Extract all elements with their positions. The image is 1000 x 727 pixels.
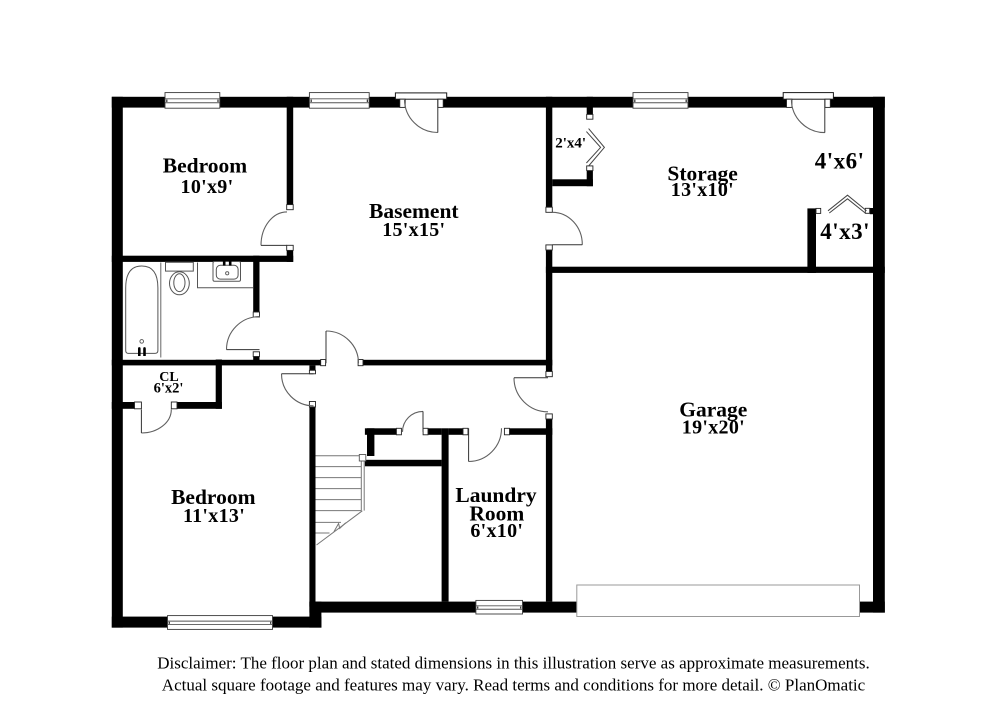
svg-text:6'x2': 6'x2'	[154, 381, 184, 397]
svg-text:4'x3': 4'x3'	[820, 219, 870, 244]
svg-text:11'x13': 11'x13'	[183, 505, 245, 527]
svg-text:2'x4': 2'x4'	[555, 136, 586, 152]
svg-text:4'x6': 4'x6'	[815, 149, 865, 174]
svg-text:Bedroom: Bedroom	[163, 153, 247, 177]
svg-text:6'x10': 6'x10'	[470, 520, 523, 542]
svg-text:Disclaimer: The floor plan and: Disclaimer: The floor plan and stated di…	[157, 654, 870, 673]
svg-text:13'x10': 13'x10'	[671, 179, 734, 201]
svg-text:15'x15': 15'x15'	[382, 219, 445, 241]
svg-text:10'x9': 10'x9'	[181, 176, 234, 198]
svg-text:Actual square footage and feat: Actual square footage and features may v…	[162, 676, 866, 695]
svg-text:19'x20': 19'x20'	[682, 417, 745, 439]
